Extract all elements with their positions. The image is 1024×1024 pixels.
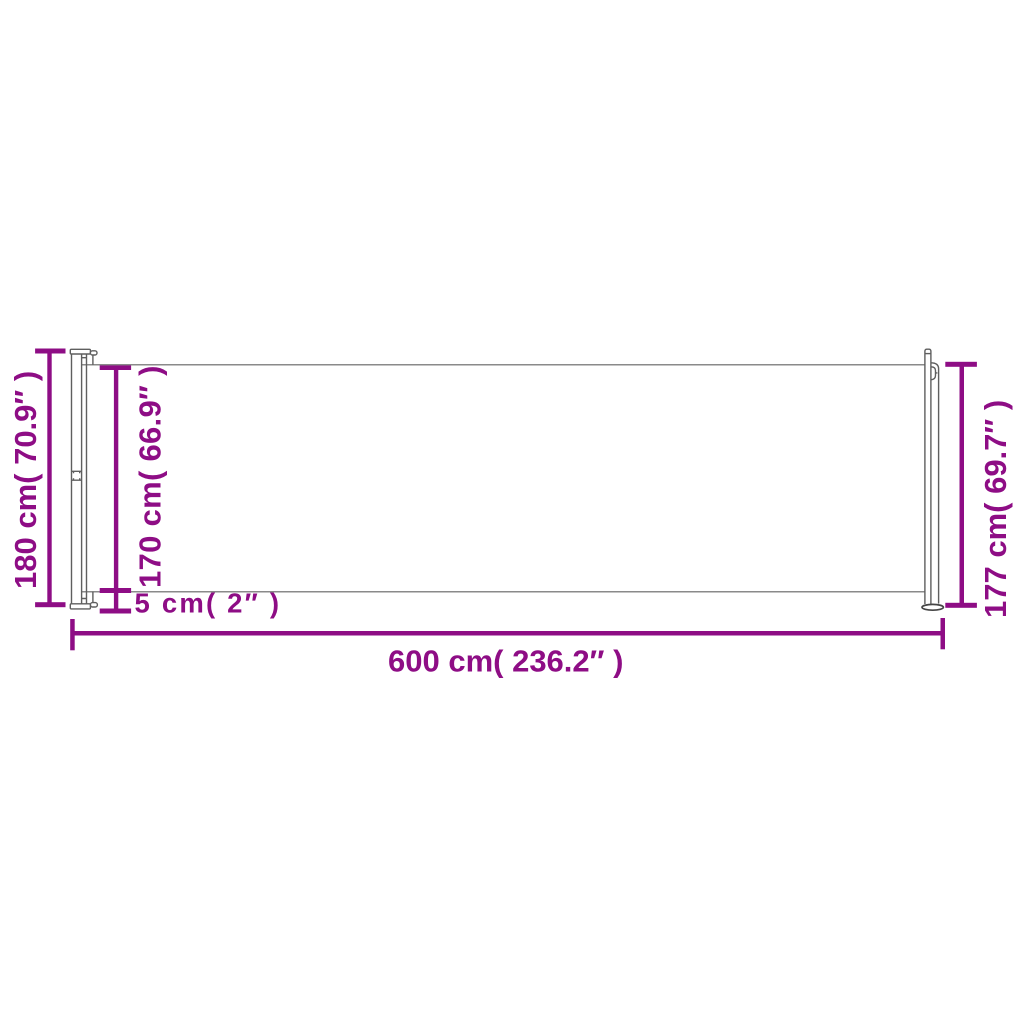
svg-text:170 cm( 66.9″ ): 170 cm( 66.9″ ) xyxy=(133,365,168,588)
svg-text:177 cm( 69.7″ ): 177 cm( 69.7″ ) xyxy=(978,400,1013,618)
svg-text:5 cm( 2″ ): 5 cm( 2″ ) xyxy=(135,588,282,619)
svg-text:600 cm( 236.2″ ): 600 cm( 236.2″ ) xyxy=(388,644,623,679)
svg-text:180 cm( 70.9″ ): 180 cm( 70.9″ ) xyxy=(8,371,43,589)
